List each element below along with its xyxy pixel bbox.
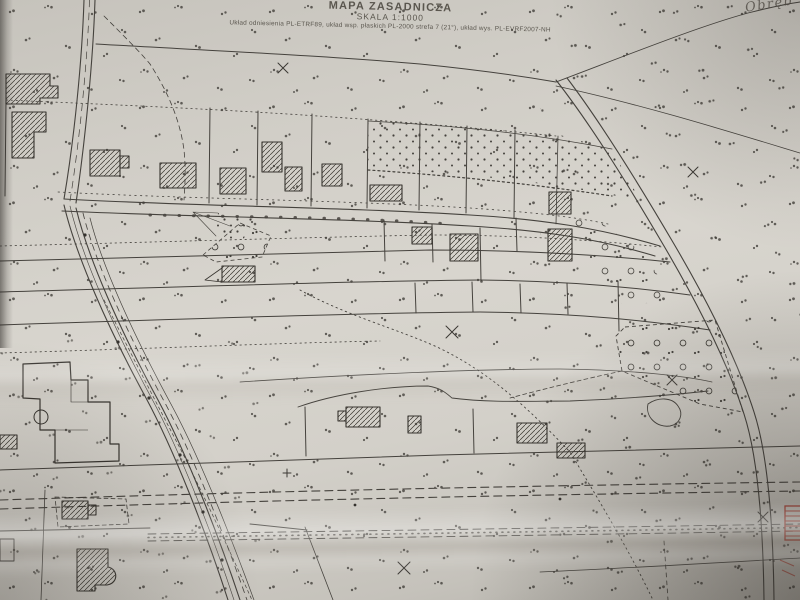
map-canvas (0, 0, 800, 600)
vegetation-symbols (0, 0, 800, 600)
paper-map-photo: MAPA ZASADNICZA SKALA 1:1000 Układ odnie… (0, 0, 800, 600)
